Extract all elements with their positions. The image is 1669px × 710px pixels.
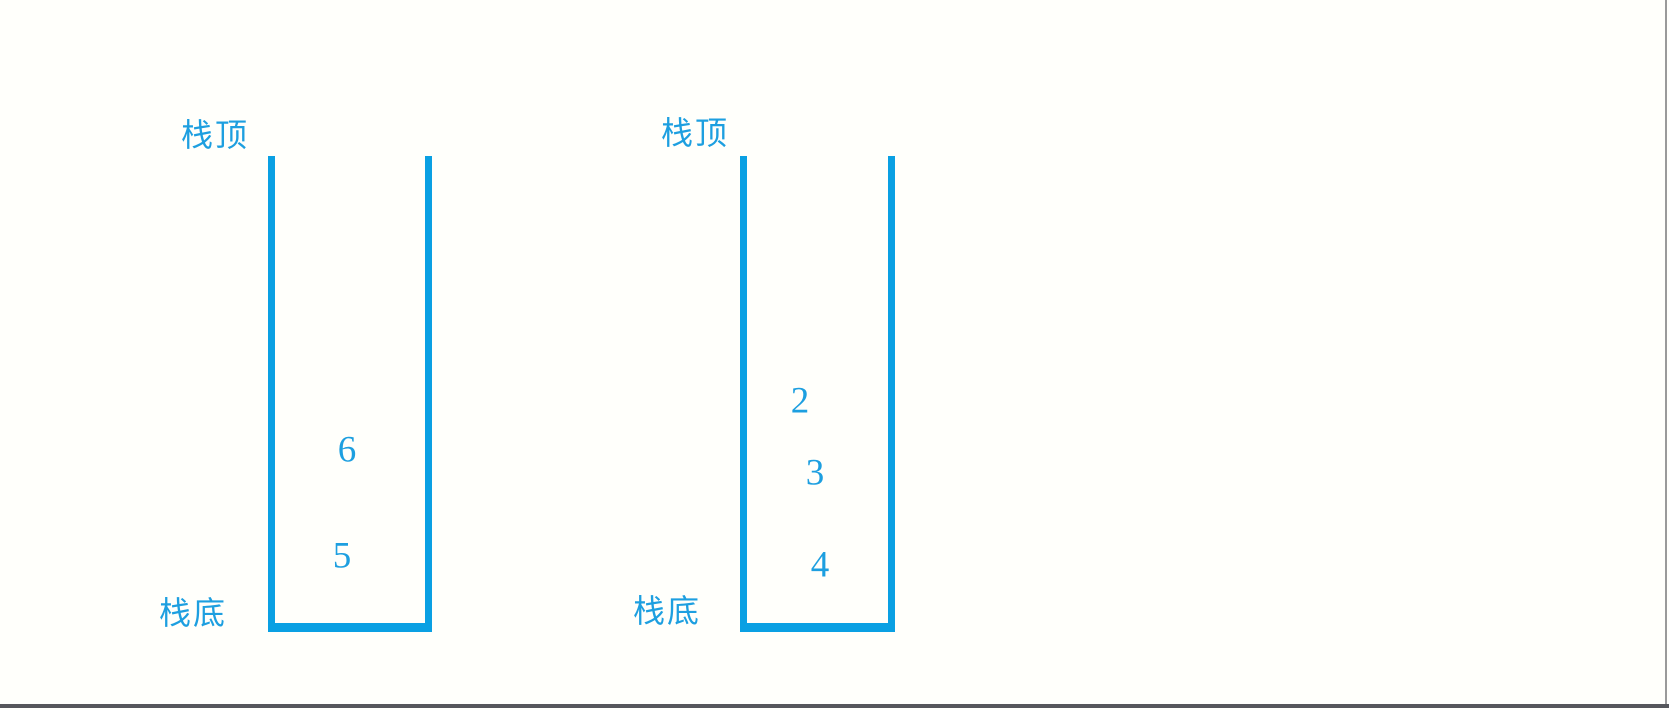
stack-diagram-page: 栈顶 6 5 栈底 栈顶 2 3 4 栈底 bbox=[0, 0, 1669, 710]
page-bottom-rule bbox=[0, 704, 1669, 708]
page-right-rule bbox=[1665, 0, 1667, 704]
stack-2-item-value: 2 bbox=[791, 383, 810, 420]
stack-1-item-value: 6 bbox=[338, 432, 357, 469]
stack-2-top-label: 栈顶 bbox=[661, 117, 729, 149]
stack-1-item-value: 5 bbox=[333, 538, 352, 575]
stack-2-item-value: 3 bbox=[806, 455, 825, 492]
stack-2-item-value: 4 bbox=[811, 547, 830, 584]
stack-2-bottom-label: 栈底 bbox=[633, 595, 701, 627]
stack-1-top-label: 栈顶 bbox=[181, 119, 249, 151]
stack-1-bottom-label: 栈底 bbox=[159, 597, 227, 629]
